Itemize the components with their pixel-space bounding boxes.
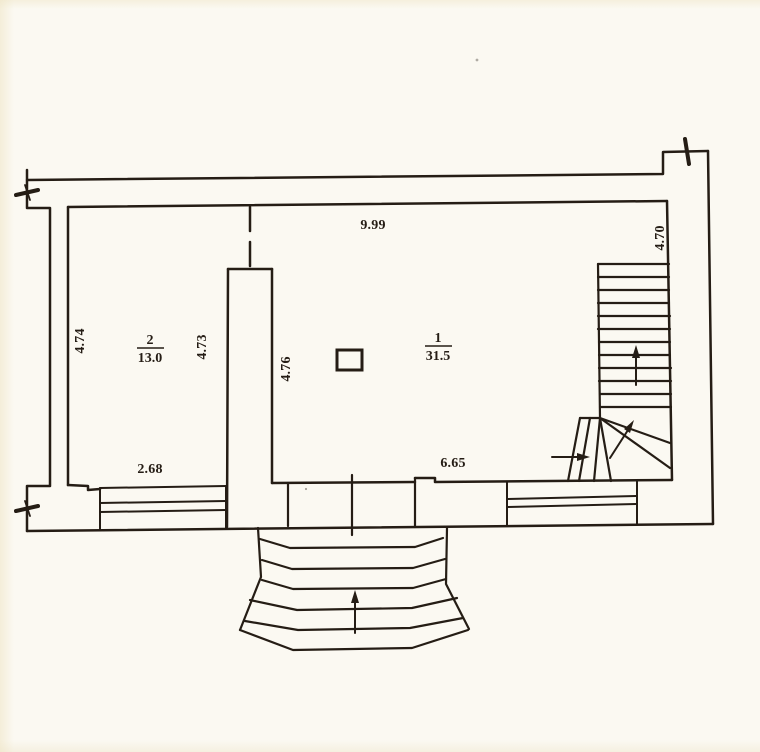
room-2-label: 2 13.0 (137, 333, 164, 366)
bottom-wall-inner-left (68, 485, 100, 490)
paper-speck (305, 488, 307, 490)
steps-direction-arrow-icon (351, 590, 359, 633)
dimension-label-top-width: 9.99 (360, 218, 385, 233)
stair-winders (568, 418, 670, 481)
survey-tick-marks (16, 139, 689, 516)
room-2-number: 2 (147, 333, 154, 348)
bottom-wall-outer (27, 524, 713, 531)
room-2-area: 13.0 (138, 351, 163, 366)
partition-wall (227, 207, 272, 527)
dimension-label-bottom-right-width: 6.65 (440, 456, 465, 471)
dimension-label-bottom-left-width: 2.68 (137, 462, 162, 477)
paper-speck (476, 59, 479, 62)
room-1-label: 1 31.5 (425, 331, 452, 364)
right-wall-outer (708, 151, 713, 524)
entry-steps (240, 528, 469, 650)
dimension-label-room2-right-height: 4.73 (195, 334, 210, 359)
room-1-area: 31.5 (426, 349, 451, 364)
top-wall-inner (68, 201, 667, 207)
dimension-label-right-height: 4.70 (653, 225, 668, 250)
window-2 (507, 480, 637, 525)
bottom-wall-inner-middle (272, 482, 415, 483)
staircase (552, 264, 671, 481)
survey-tick-icon (685, 139, 689, 164)
structural-column (337, 350, 362, 370)
dimension-label-partition-right-height: 4.76 (279, 356, 294, 381)
top-wall-outer (27, 151, 708, 180)
stair-direction-arrow-icon (610, 345, 640, 458)
bottom-wall-inner-right (415, 478, 672, 482)
floor-plan-sheet: 9.99 4.74 4.73 4.76 4.70 2.68 6.65 2 13.… (0, 0, 760, 752)
stair-treads (598, 264, 671, 407)
floor-plan-drawing: 9.99 4.74 4.73 4.76 4.70 2.68 6.65 2 13.… (0, 0, 760, 752)
window-1 (100, 486, 226, 529)
left-wall (27, 170, 50, 531)
dimension-label-left-height: 4.74 (73, 328, 88, 353)
room-1-number: 1 (435, 331, 442, 346)
